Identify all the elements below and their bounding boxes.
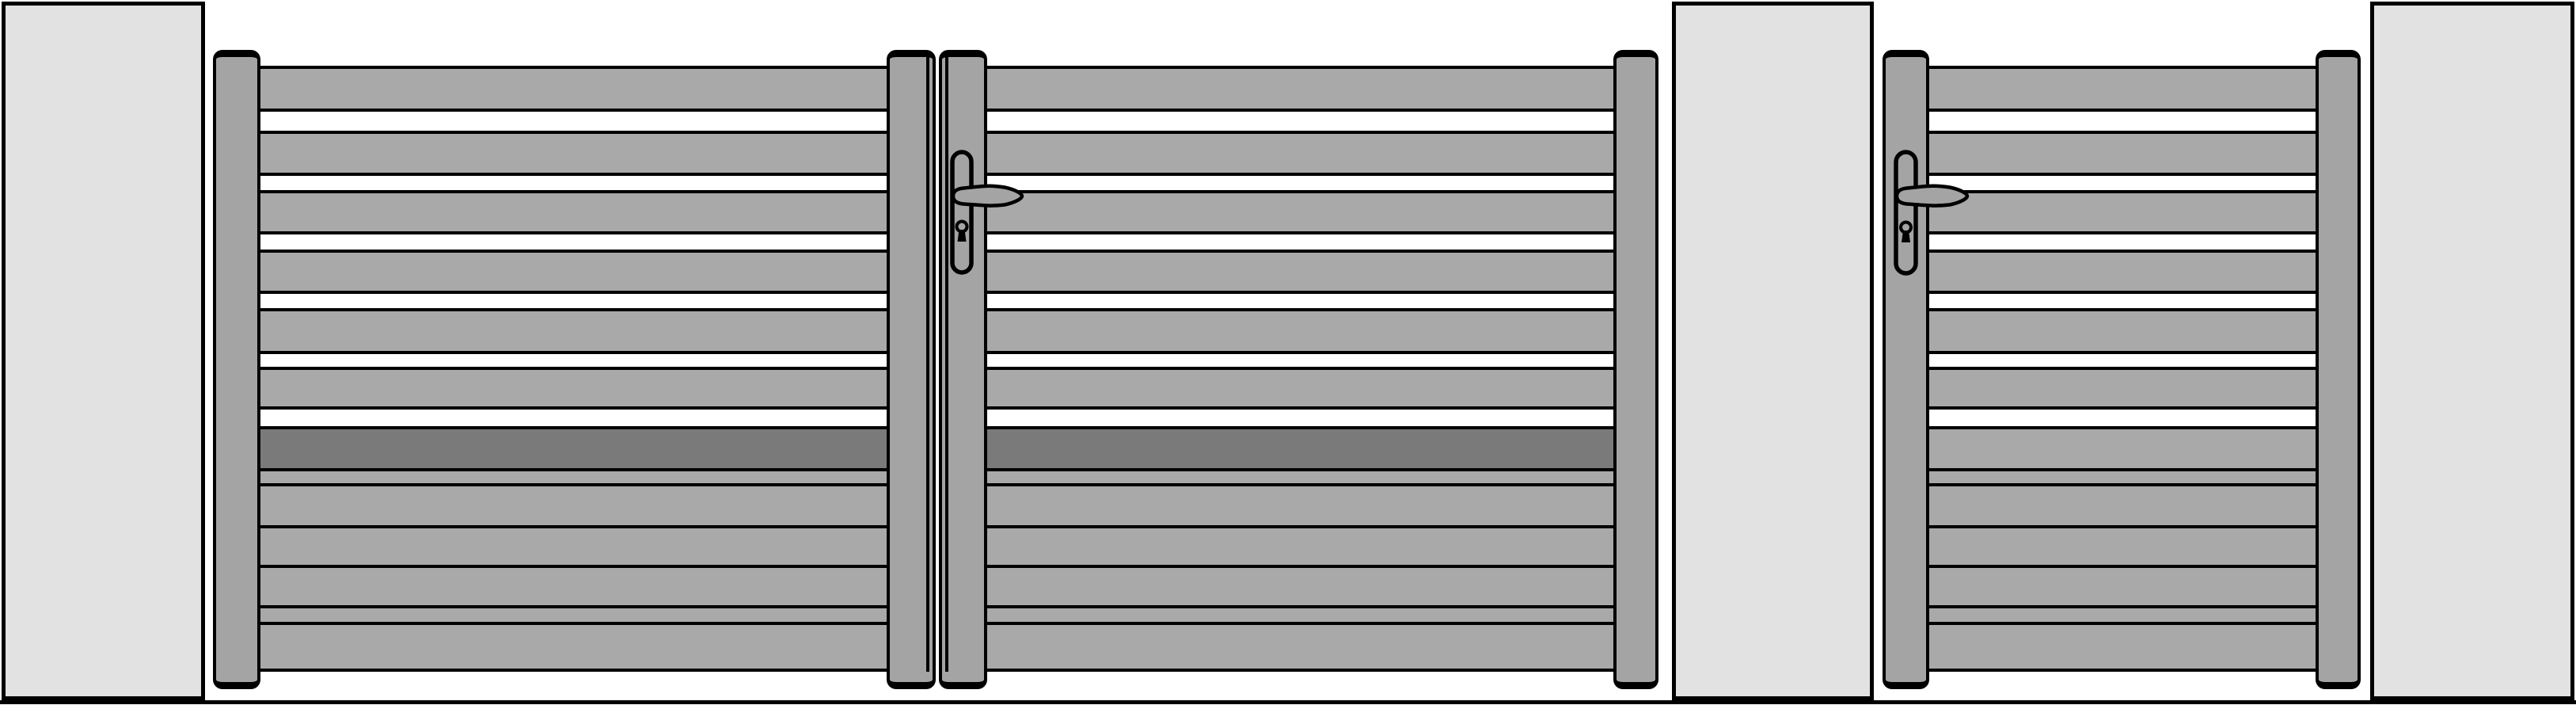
gate-slat bbox=[257, 483, 890, 528]
center-pillar bbox=[1672, 2, 1874, 700]
gate-slat bbox=[984, 565, 1617, 608]
right-pillar bbox=[2370, 2, 2574, 700]
gate-slat bbox=[257, 367, 890, 410]
handle-lever-icon bbox=[953, 186, 1022, 206]
handle-plate-icon bbox=[1896, 152, 1916, 273]
gate-slat bbox=[1926, 525, 2319, 568]
gate-slat bbox=[257, 525, 890, 568]
hinge-stile-pedestrian bbox=[2316, 50, 2361, 689]
leaf-edge-line bbox=[926, 53, 929, 672]
gate-slat bbox=[1926, 367, 2319, 410]
gate-slat bbox=[1926, 622, 2319, 672]
gate-slat bbox=[257, 565, 890, 608]
gate-slat bbox=[984, 483, 1617, 528]
gate-slat bbox=[984, 250, 1617, 294]
gate-slat bbox=[984, 367, 1617, 410]
hinge-stile-left-leaf bbox=[213, 50, 260, 689]
handle-lever-icon bbox=[1897, 186, 1967, 206]
gate-slat bbox=[984, 131, 1617, 176]
gate-system-illustration bbox=[0, 0, 2576, 705]
gate-slat bbox=[1926, 565, 2319, 608]
left-pillar bbox=[2, 2, 205, 700]
gate-slat bbox=[257, 308, 890, 354]
gate-slat bbox=[1926, 66, 2319, 112]
gate-slat bbox=[1926, 308, 2319, 354]
gate-handle bbox=[946, 146, 1051, 285]
latch-stile-right-leaf bbox=[1613, 50, 1658, 689]
gate-slat bbox=[257, 250, 890, 294]
gate-slat bbox=[257, 190, 890, 234]
gate-slat bbox=[257, 66, 890, 112]
accent-slat bbox=[257, 426, 890, 471]
gate-slat bbox=[984, 622, 1617, 672]
gate-slat bbox=[257, 622, 890, 672]
ground-line bbox=[0, 700, 2576, 704]
pedestrian-gate-handle bbox=[1890, 146, 1996, 286]
gate-slat bbox=[984, 190, 1617, 234]
gate-slat bbox=[984, 308, 1617, 354]
gate-slat bbox=[1926, 426, 2319, 471]
gate-slat bbox=[257, 131, 890, 176]
gate-slat bbox=[984, 525, 1617, 568]
gate-slat bbox=[1926, 483, 2319, 528]
handle-plate-icon bbox=[952, 152, 971, 272]
accent-slat bbox=[984, 426, 1617, 471]
gate-slat bbox=[984, 66, 1617, 112]
